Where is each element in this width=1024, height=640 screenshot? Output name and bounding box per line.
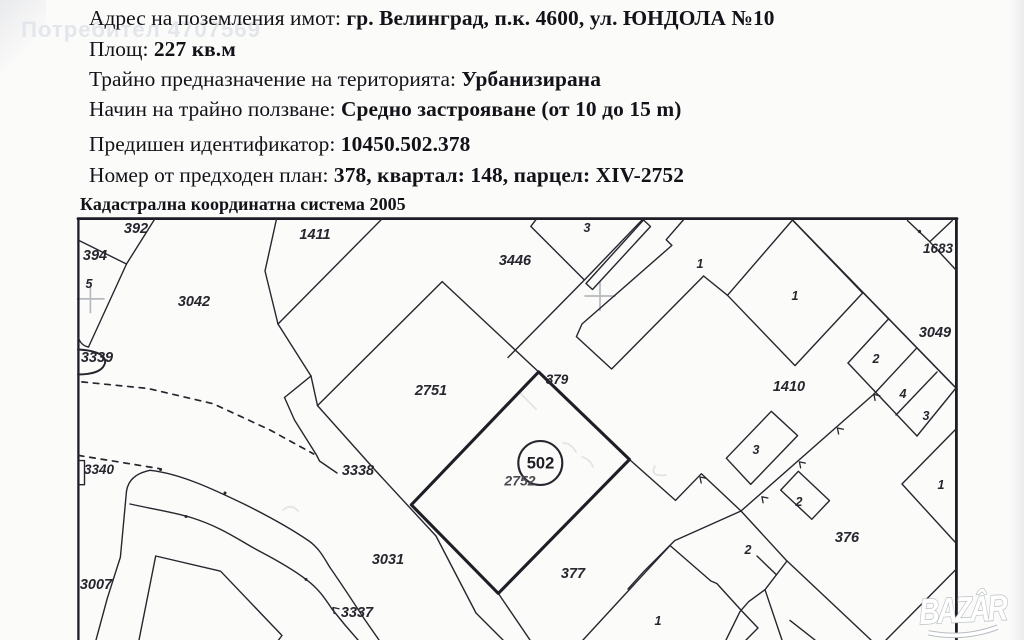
svg-text:1411: 1411 [299, 227, 330, 243]
svg-text:3: 3 [923, 409, 930, 423]
svg-text:5: 5 [86, 277, 94, 291]
svg-text:3049: 3049 [919, 325, 951, 341]
svg-text:3042: 3042 [178, 294, 210, 310]
svg-text:3031: 3031 [372, 552, 404, 568]
svg-text:1: 1 [697, 257, 704, 271]
svg-text:2: 2 [795, 495, 803, 509]
svg-text:377: 377 [561, 566, 586, 582]
svg-text:2: 2 [872, 352, 880, 366]
svg-text:1: 1 [792, 289, 799, 303]
svg-text:3: 3 [584, 221, 591, 235]
svg-text:379: 379 [546, 372, 569, 387]
svg-text:2: 2 [744, 543, 752, 557]
svg-text:4: 4 [899, 387, 907, 401]
svg-text:3446: 3446 [499, 253, 532, 269]
svg-text:1683: 1683 [923, 241, 954, 256]
svg-text:3339: 3339 [81, 350, 113, 366]
svg-text:2752: 2752 [503, 473, 535, 489]
svg-text:394: 394 [83, 248, 107, 264]
svg-text:3337: 3337 [341, 605, 374, 621]
svg-text:3340: 3340 [84, 462, 115, 477]
svg-text:3338: 3338 [342, 463, 375, 479]
svg-text:1: 1 [938, 478, 945, 492]
svg-text:376: 376 [835, 530, 860, 546]
svg-text:3: 3 [753, 443, 760, 457]
svg-text:3007: 3007 [80, 577, 113, 593]
svg-text:1410: 1410 [773, 379, 805, 395]
svg-text:502: 502 [527, 455, 555, 473]
svg-text:1: 1 [655, 614, 662, 628]
svg-text:2751: 2751 [414, 383, 447, 399]
svg-text:392: 392 [124, 221, 148, 237]
